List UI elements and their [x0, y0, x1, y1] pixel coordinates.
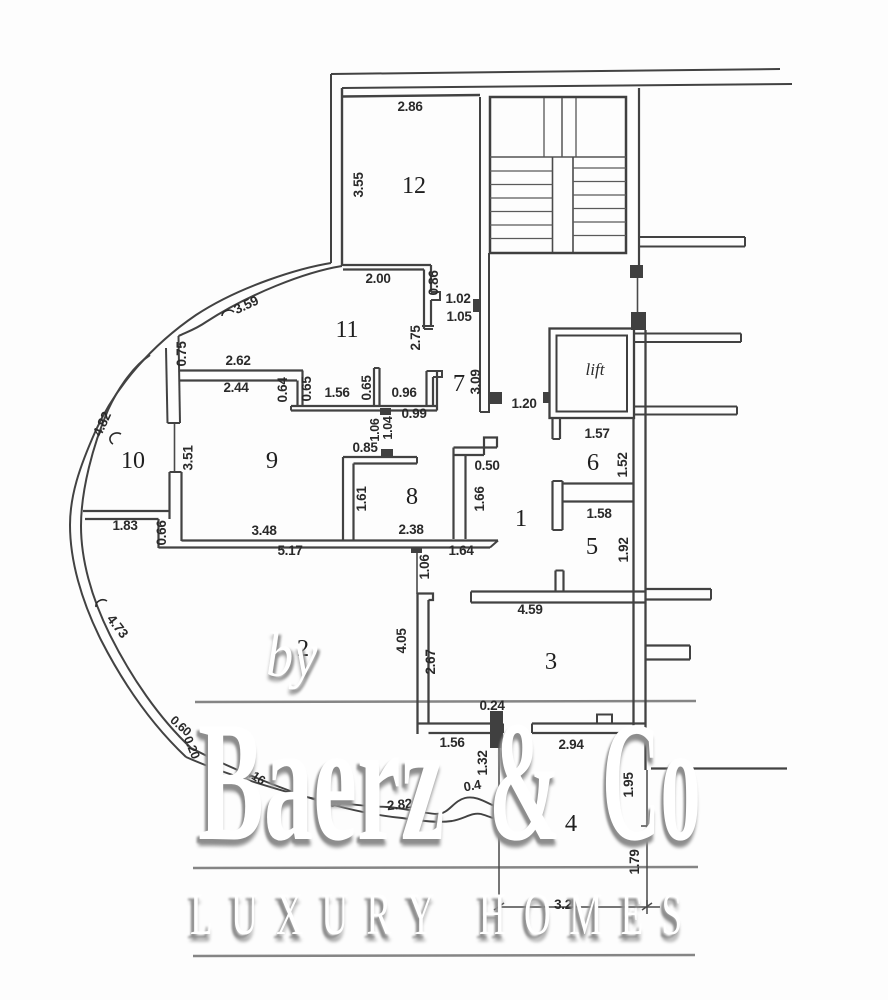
svg-text:7: 7 — [453, 370, 465, 397]
svg-text:2.00: 2.00 — [365, 271, 390, 286]
svg-text:4.05: 4.05 — [394, 628, 409, 654]
svg-text:12: 12 — [402, 173, 426, 199]
svg-text:1: 1 — [515, 505, 527, 532]
svg-text:4.59: 4.59 — [517, 602, 542, 617]
svg-text:0.50: 0.50 — [474, 458, 499, 473]
svg-text:0.96: 0.96 — [391, 385, 417, 400]
svg-text:10: 10 — [121, 448, 145, 474]
svg-text:6: 6 — [587, 449, 599, 476]
svg-text:2.38: 2.38 — [398, 522, 424, 537]
svg-text:0.86: 0.86 — [426, 270, 441, 296]
svg-text:1.66: 1.66 — [472, 486, 487, 512]
svg-text:8: 8 — [406, 483, 418, 510]
svg-text:0.4: 0.4 — [462, 777, 483, 795]
svg-text:4: 4 — [565, 810, 577, 837]
svg-text:1.06: 1.06 — [417, 554, 432, 580]
svg-text:1.64: 1.64 — [448, 543, 474, 558]
svg-text:2.94: 2.94 — [558, 737, 584, 752]
svg-text:3.09: 3.09 — [468, 369, 483, 394]
svg-text:4.73: 4.73 — [104, 612, 132, 642]
svg-text:9: 9 — [266, 447, 278, 474]
svg-text:5.17: 5.17 — [277, 543, 302, 558]
svg-text:1.02: 1.02 — [445, 291, 470, 306]
svg-text:1.92: 1.92 — [616, 537, 631, 562]
svg-text:1.06: 1.06 — [368, 418, 382, 441]
svg-text:5: 5 — [586, 533, 598, 560]
svg-text:1.56: 1.56 — [324, 385, 350, 400]
svg-text:2.44: 2.44 — [223, 380, 249, 395]
svg-text:4.82: 4.82 — [90, 410, 114, 439]
svg-text:lift: lift — [586, 360, 606, 379]
svg-text:3: 3 — [545, 648, 557, 675]
svg-text:1.57: 1.57 — [584, 426, 609, 441]
svg-text:0.65: 0.65 — [299, 376, 314, 402]
svg-text:1.58: 1.58 — [586, 506, 612, 521]
svg-text:3.55: 3.55 — [351, 172, 366, 198]
svg-text:1.61: 1.61 — [354, 486, 369, 512]
svg-text:0.99: 0.99 — [401, 406, 426, 421]
svg-text:3.51: 3.51 — [181, 445, 196, 471]
svg-text:3.59: 3.59 — [232, 293, 261, 317]
svg-text:0.65: 0.65 — [359, 375, 374, 401]
svg-text:0.66: 0.66 — [154, 520, 169, 546]
svg-text:2.67: 2.67 — [423, 649, 438, 674]
svg-text:1.04: 1.04 — [381, 416, 395, 439]
svg-text:0.64: 0.64 — [275, 377, 290, 403]
svg-text:1.20: 1.20 — [511, 396, 536, 411]
svg-text:0.75: 0.75 — [174, 341, 189, 367]
svg-text:3.48: 3.48 — [251, 523, 277, 538]
svg-text:1.52: 1.52 — [615, 452, 630, 477]
svg-text:2.75: 2.75 — [408, 325, 423, 351]
svg-text:1.05: 1.05 — [446, 309, 472, 324]
svg-text:11: 11 — [335, 317, 358, 343]
svg-text:1.83: 1.83 — [112, 518, 138, 533]
svg-text:2.62: 2.62 — [225, 353, 250, 368]
svg-text:2.86: 2.86 — [397, 99, 423, 114]
svg-text:1.32: 1.32 — [475, 750, 490, 775]
